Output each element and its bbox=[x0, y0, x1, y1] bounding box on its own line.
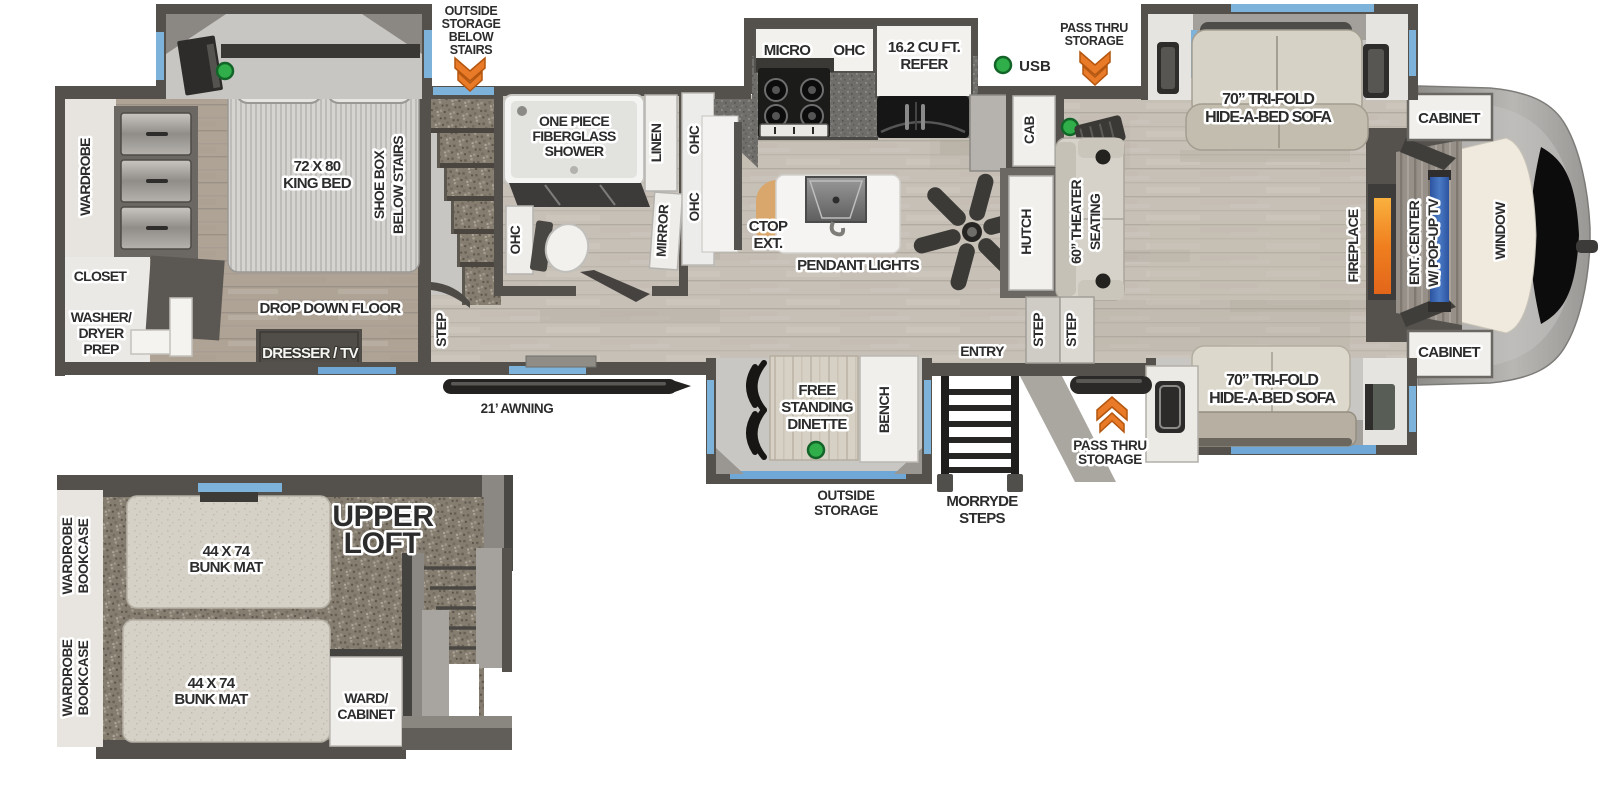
svg-text:PASS THRU: PASS THRU bbox=[1060, 21, 1128, 35]
svg-text:STANDING: STANDING bbox=[781, 399, 853, 416]
svg-text:HUTCH: HUTCH bbox=[1018, 209, 1034, 255]
svg-text:STEP: STEP bbox=[1030, 313, 1046, 347]
svg-text:CLOSET: CLOSET bbox=[74, 268, 128, 284]
svg-text:ENTRY: ENTRY bbox=[960, 343, 1005, 359]
svg-text:BOOKCASE: BOOKCASE bbox=[76, 518, 91, 593]
svg-text:ENT. CENTER: ENT. CENTER bbox=[1406, 200, 1422, 285]
svg-text:60” THEATER: 60” THEATER bbox=[1068, 179, 1084, 263]
svg-text:WARDROBE: WARDROBE bbox=[77, 138, 93, 216]
svg-text:USB: USB bbox=[1019, 58, 1051, 75]
svg-text:OHC: OHC bbox=[687, 192, 702, 221]
svg-text:MIRROR: MIRROR bbox=[654, 204, 672, 258]
svg-text:MORRYDE: MORRYDE bbox=[946, 493, 1018, 510]
svg-text:44 X 74: 44 X 74 bbox=[188, 675, 236, 692]
svg-text:LOFT: LOFT bbox=[344, 527, 421, 560]
svg-text:ONE PIECE: ONE PIECE bbox=[539, 113, 609, 129]
svg-text:STEP: STEP bbox=[433, 313, 449, 347]
svg-text:CABINET: CABINET bbox=[1418, 344, 1480, 361]
svg-text:OUTSIDE: OUTSIDE bbox=[817, 488, 875, 503]
svg-text:WARD/: WARD/ bbox=[344, 690, 388, 706]
svg-text:PREP: PREP bbox=[83, 341, 119, 357]
svg-text:DROP DOWN FLOOR: DROP DOWN FLOOR bbox=[260, 300, 402, 317]
svg-text:BOOKCASE: BOOKCASE bbox=[76, 640, 91, 715]
svg-text:STORAGE: STORAGE bbox=[442, 17, 501, 31]
svg-text:WASHER/: WASHER/ bbox=[71, 309, 132, 325]
svg-text:W/ POP-UP TV: W/ POP-UP TV bbox=[1425, 198, 1441, 287]
svg-text:SHOE BOX: SHOE BOX bbox=[371, 149, 387, 219]
svg-text:EXT.: EXT. bbox=[754, 235, 783, 252]
svg-text:OHC: OHC bbox=[687, 125, 702, 154]
svg-text:70” TRI-FOLD: 70” TRI-FOLD bbox=[1222, 91, 1314, 108]
svg-text:FIREPLACE: FIREPLACE bbox=[1345, 209, 1361, 282]
svg-text:FREE: FREE bbox=[798, 382, 836, 399]
svg-text:KING BED: KING BED bbox=[283, 175, 352, 192]
svg-text:CABINET: CABINET bbox=[337, 706, 395, 722]
svg-text:STORAGE: STORAGE bbox=[1078, 452, 1142, 467]
svg-text:HIDE-A-BED SOFA: HIDE-A-BED SOFA bbox=[1205, 109, 1332, 126]
svg-text:STORAGE: STORAGE bbox=[814, 503, 878, 518]
svg-text:70” TRI-FOLD: 70” TRI-FOLD bbox=[1226, 372, 1318, 389]
svg-text:SHOWER: SHOWER bbox=[545, 143, 604, 159]
svg-text:STEP: STEP bbox=[1063, 313, 1079, 347]
svg-text:STORAGE: STORAGE bbox=[1065, 34, 1124, 48]
svg-text:CTOP: CTOP bbox=[749, 218, 788, 235]
svg-text:BELOW STAIRS: BELOW STAIRS bbox=[390, 136, 406, 234]
svg-text:BENCH: BENCH bbox=[876, 386, 892, 433]
svg-text:BUNK MAT: BUNK MAT bbox=[189, 559, 263, 576]
svg-text:MICRO: MICRO bbox=[764, 42, 812, 59]
svg-text:BUNK MAT: BUNK MAT bbox=[174, 691, 248, 708]
svg-text:16.2 CU FT.: 16.2 CU FT. bbox=[888, 39, 961, 56]
svg-text:HIDE-A-BED SOFA: HIDE-A-BED SOFA bbox=[1209, 390, 1336, 407]
svg-text:REFER: REFER bbox=[900, 56, 948, 73]
svg-text:DINETTE: DINETTE bbox=[787, 416, 847, 433]
svg-text:CAB: CAB bbox=[1022, 115, 1037, 144]
svg-text:BELOW: BELOW bbox=[449, 30, 494, 44]
svg-text:STEPS: STEPS bbox=[959, 510, 1005, 527]
svg-text:WARDROBE: WARDROBE bbox=[60, 517, 75, 594]
svg-text:WARDROBE: WARDROBE bbox=[60, 639, 75, 716]
svg-text:PASS THRU: PASS THRU bbox=[1073, 438, 1146, 453]
svg-text:OUTSIDE: OUTSIDE bbox=[445, 4, 498, 18]
svg-text:FIBERGLASS: FIBERGLASS bbox=[532, 128, 616, 144]
svg-text:72 X 80: 72 X 80 bbox=[294, 158, 341, 175]
svg-text:CABINET: CABINET bbox=[1418, 110, 1480, 127]
svg-text:WINDOW: WINDOW bbox=[1492, 201, 1508, 260]
svg-text:21’ AWNING: 21’ AWNING bbox=[481, 401, 554, 416]
svg-text:STAIRS: STAIRS bbox=[450, 43, 493, 57]
svg-text:PENDANT LIGHTS: PENDANT LIGHTS bbox=[797, 257, 920, 274]
svg-text:44 X 74: 44 X 74 bbox=[203, 543, 251, 560]
svg-text:OHC: OHC bbox=[508, 225, 523, 254]
svg-text:LINEN: LINEN bbox=[648, 123, 664, 162]
svg-text:DRESSER / TV: DRESSER / TV bbox=[262, 345, 358, 362]
svg-text:DRYER: DRYER bbox=[79, 325, 125, 341]
svg-text:SEATING: SEATING bbox=[1087, 193, 1103, 250]
svg-text:OHC: OHC bbox=[833, 42, 865, 59]
